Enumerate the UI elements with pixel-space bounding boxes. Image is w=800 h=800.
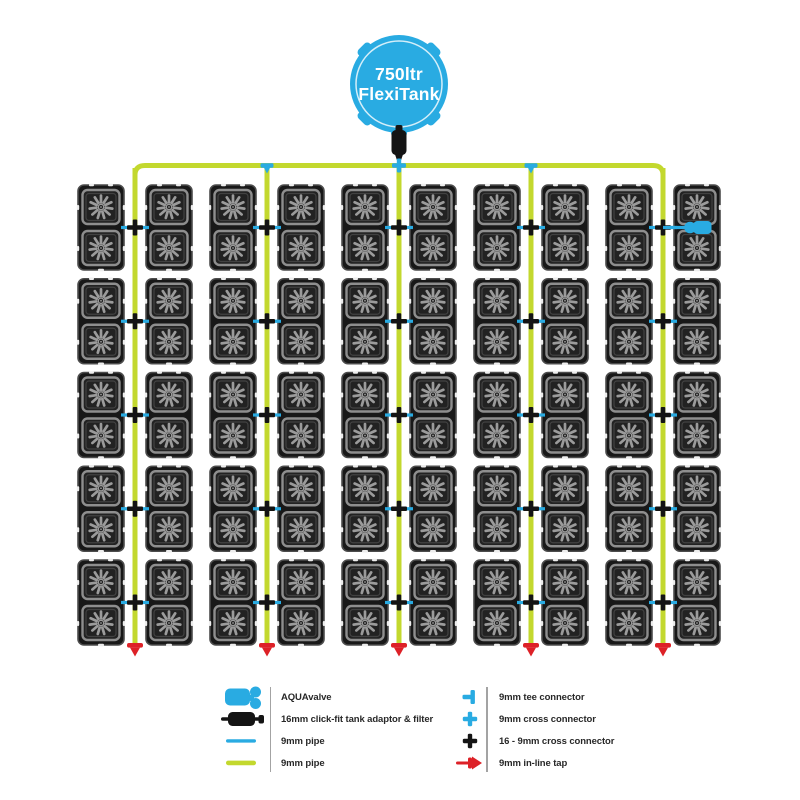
pot <box>679 606 716 640</box>
pot <box>83 231 120 265</box>
pot-grid <box>77 159 721 657</box>
pot-tray <box>277 559 325 646</box>
cross-connector-16-9 <box>523 407 539 423</box>
pot <box>611 512 648 546</box>
pot <box>151 190 188 224</box>
pot-tray <box>145 278 193 365</box>
pot-tray <box>77 278 125 365</box>
pot-tray <box>605 559 653 646</box>
pot <box>479 471 516 505</box>
pot-tray <box>341 184 389 271</box>
aquavalve-icon <box>221 683 267 711</box>
pot <box>679 284 716 318</box>
tee-connector <box>261 163 274 173</box>
pot-tray <box>77 371 125 458</box>
pot-tray <box>277 371 325 458</box>
pot <box>215 471 252 505</box>
pot <box>547 325 584 359</box>
pot <box>611 190 648 224</box>
cross-connector-16-9 <box>391 220 407 236</box>
cross-connector-16-9 <box>391 313 407 329</box>
cross-connector-16-9 <box>259 501 275 517</box>
pot <box>415 231 452 265</box>
pot <box>679 231 716 265</box>
pipe-blue-icon <box>221 735 267 747</box>
pot-tray <box>673 371 721 458</box>
legend-item-tee: 9mm tee connector <box>455 686 614 708</box>
tee-connector-icon <box>455 687 485 707</box>
pot-tray <box>409 559 457 646</box>
cross-connector-16-9 <box>259 595 275 611</box>
pot <box>83 325 120 359</box>
legend-item-tank-adaptor: 16mm click-fit tank adaptor & filter <box>221 708 433 730</box>
pot <box>283 325 320 359</box>
pot <box>83 284 120 318</box>
pot <box>83 471 120 505</box>
pot-tray <box>209 278 257 365</box>
pot <box>83 378 120 412</box>
pot-tray <box>605 184 653 271</box>
pot-tray <box>409 278 457 365</box>
pot-tray <box>605 278 653 365</box>
pot <box>679 565 716 599</box>
pot <box>215 190 252 224</box>
legend-right-column: 9mm tee connector 9mm cross connector 16… <box>455 686 614 774</box>
cross-connector-16-9 <box>523 595 539 611</box>
cross-connector-16-9 <box>259 407 275 423</box>
pot <box>283 231 320 265</box>
pot <box>83 606 120 640</box>
pot <box>151 419 188 453</box>
pot <box>215 378 252 412</box>
tank-size-label: 750ltr <box>375 64 423 84</box>
legend-item-cross: 9mm cross connector <box>455 708 614 730</box>
pot <box>547 512 584 546</box>
pot <box>83 190 120 224</box>
pot <box>151 606 188 640</box>
pot <box>283 419 320 453</box>
pot <box>679 325 716 359</box>
pot <box>415 378 452 412</box>
pot <box>611 471 648 505</box>
pot-tray <box>277 278 325 365</box>
cross-connector-16-9 <box>127 407 143 423</box>
pot <box>547 471 584 505</box>
legend-label: 9mm pipe <box>267 736 325 747</box>
legend-label: 16mm click-fit tank adaptor & filter <box>267 714 433 725</box>
pot-tray <box>673 559 721 646</box>
pot-tray <box>277 465 325 552</box>
inline-tap-icon <box>455 753 485 773</box>
inline-tap <box>391 643 407 657</box>
pot <box>283 512 320 546</box>
pot-tray <box>541 278 589 365</box>
pot <box>479 378 516 412</box>
pot-tray <box>409 465 457 552</box>
pot <box>679 190 716 224</box>
pot <box>347 512 384 546</box>
tank-adaptor-icon <box>221 710 267 728</box>
legend-label: 9mm in-line tap <box>485 758 567 769</box>
pot-tray <box>473 559 521 646</box>
legend-item-inline-tap: 9mm in-line tap <box>455 752 614 774</box>
pot <box>215 565 252 599</box>
pot-tray <box>605 371 653 458</box>
pot <box>215 419 252 453</box>
pipe-yellow-icon <box>221 757 267 769</box>
pot <box>611 231 648 265</box>
tank-name-label: FlexiTank <box>358 84 439 104</box>
legend-item-yellow-pipe: 9mm pipe <box>221 752 433 774</box>
pot <box>415 419 452 453</box>
pot <box>415 565 452 599</box>
pot <box>347 471 384 505</box>
aquavalve <box>663 221 712 234</box>
pot-tray <box>209 184 257 271</box>
pot <box>83 512 120 546</box>
pot-tray <box>541 465 589 552</box>
pot <box>151 325 188 359</box>
legend-item-blue-pipe: 9mm pipe <box>221 730 433 752</box>
pot <box>215 284 252 318</box>
pot <box>347 606 384 640</box>
pot <box>611 565 648 599</box>
pot-tray <box>145 371 193 458</box>
pot-tray <box>473 278 521 365</box>
cross-connector-16-9 <box>391 595 407 611</box>
pot <box>679 419 716 453</box>
pot-tray <box>277 184 325 271</box>
pot-tray <box>409 184 457 271</box>
tee-connector <box>525 163 538 173</box>
pot-tray <box>77 465 125 552</box>
cross-connector-icon <box>455 709 485 729</box>
pot-tray <box>209 371 257 458</box>
inline-tap <box>259 643 275 657</box>
pot <box>479 231 516 265</box>
pot-tray <box>77 184 125 271</box>
pot <box>479 284 516 318</box>
legend-label: 9mm cross connector <box>485 714 596 725</box>
pot <box>283 471 320 505</box>
cross-connector-16-9 <box>523 220 539 236</box>
pot <box>83 419 120 453</box>
pot <box>415 284 452 318</box>
pot <box>547 606 584 640</box>
pot <box>679 471 716 505</box>
pot <box>479 325 516 359</box>
flexitank: 750ltr FlexiTank <box>350 35 448 133</box>
pot <box>547 565 584 599</box>
cross-connector-16-9 <box>655 313 671 329</box>
pot-tray <box>541 184 589 271</box>
cross-connector-16-9 <box>259 220 275 236</box>
pot-tray <box>541 371 589 458</box>
inline-tap <box>127 643 143 657</box>
pot <box>283 284 320 318</box>
pot-tray <box>409 371 457 458</box>
cross-connector-16-9 <box>127 595 143 611</box>
pot <box>347 284 384 318</box>
pot <box>283 378 320 412</box>
pot <box>611 378 648 412</box>
pot <box>215 606 252 640</box>
pot <box>151 471 188 505</box>
legend-item-aquavalve: AQUAvalve <box>221 686 433 708</box>
cross-connector-16-9 <box>391 407 407 423</box>
pot-tray <box>341 278 389 365</box>
pot <box>347 378 384 412</box>
pot <box>611 325 648 359</box>
pot <box>151 512 188 546</box>
pot <box>347 231 384 265</box>
pot <box>415 325 452 359</box>
pot <box>215 325 252 359</box>
irrigation-system-diagram: 750ltr FlexiTank AQUAvalve <box>0 0 800 800</box>
pot <box>415 606 452 640</box>
pot <box>479 419 516 453</box>
pot-tray <box>145 559 193 646</box>
system-diagram: 750ltr FlexiTank <box>0 0 800 800</box>
cross-16-9-icon <box>455 731 485 751</box>
pot-tray <box>473 184 521 271</box>
cross-connector-16-9 <box>523 313 539 329</box>
cross-connector-16-9 <box>259 313 275 329</box>
pot-tray <box>145 184 193 271</box>
pot <box>151 284 188 318</box>
pot-tray <box>673 278 721 365</box>
pot <box>151 231 188 265</box>
pot <box>283 565 320 599</box>
pot <box>679 378 716 412</box>
pot <box>347 419 384 453</box>
cross-connector-9mm <box>392 159 406 173</box>
pot-tray <box>473 465 521 552</box>
cross-connector-16-9 <box>523 501 539 517</box>
pot-tray <box>77 559 125 646</box>
cross-connector-16-9 <box>391 501 407 517</box>
pot-tray <box>209 465 257 552</box>
pot-tray <box>605 465 653 552</box>
pot <box>151 565 188 599</box>
pot <box>415 190 452 224</box>
pot-tray <box>673 465 721 552</box>
pot <box>611 419 648 453</box>
pot <box>415 471 452 505</box>
legend-item-cross-16-9: 16 - 9mm cross connector <box>455 730 614 752</box>
pot <box>479 565 516 599</box>
cross-connector-16-9 <box>127 313 143 329</box>
cross-connector-16-9 <box>127 501 143 517</box>
cross-connector-16-9 <box>127 220 143 236</box>
pot <box>415 512 452 546</box>
legend-left-column: AQUAvalve 16mm click-fit tank adaptor & … <box>221 686 433 774</box>
pot <box>347 325 384 359</box>
inline-tap <box>523 643 539 657</box>
legend-label: 9mm pipe <box>267 758 325 769</box>
pot <box>547 231 584 265</box>
pot <box>547 190 584 224</box>
pot <box>611 606 648 640</box>
pot <box>283 190 320 224</box>
pot <box>283 606 320 640</box>
pot <box>479 190 516 224</box>
pot <box>547 284 584 318</box>
legend-label: 9mm tee connector <box>485 692 584 703</box>
pot <box>151 378 188 412</box>
legend-label: 16 - 9mm cross connector <box>485 736 614 747</box>
pot <box>83 565 120 599</box>
pot <box>347 565 384 599</box>
pot <box>611 284 648 318</box>
pot-tray <box>341 371 389 458</box>
pot <box>215 231 252 265</box>
pot <box>479 606 516 640</box>
cross-connector-16-9 <box>655 407 671 423</box>
pot-tray <box>473 371 521 458</box>
pot <box>215 512 252 546</box>
inline-tap <box>655 643 671 657</box>
pot-tray <box>209 559 257 646</box>
cross-connector-16-9 <box>655 501 671 517</box>
pot <box>479 512 516 546</box>
pot <box>547 419 584 453</box>
legend-divider-right <box>486 687 488 772</box>
legend-divider-left <box>270 687 272 772</box>
legend-label: AQUAvalve <box>267 692 332 703</box>
pot-tray <box>341 559 389 646</box>
pot-tray <box>341 465 389 552</box>
pot <box>347 190 384 224</box>
pot <box>547 378 584 412</box>
pot-tray <box>541 559 589 646</box>
cross-connector-16-9 <box>655 595 671 611</box>
pot <box>679 512 716 546</box>
pot-tray <box>145 465 193 552</box>
